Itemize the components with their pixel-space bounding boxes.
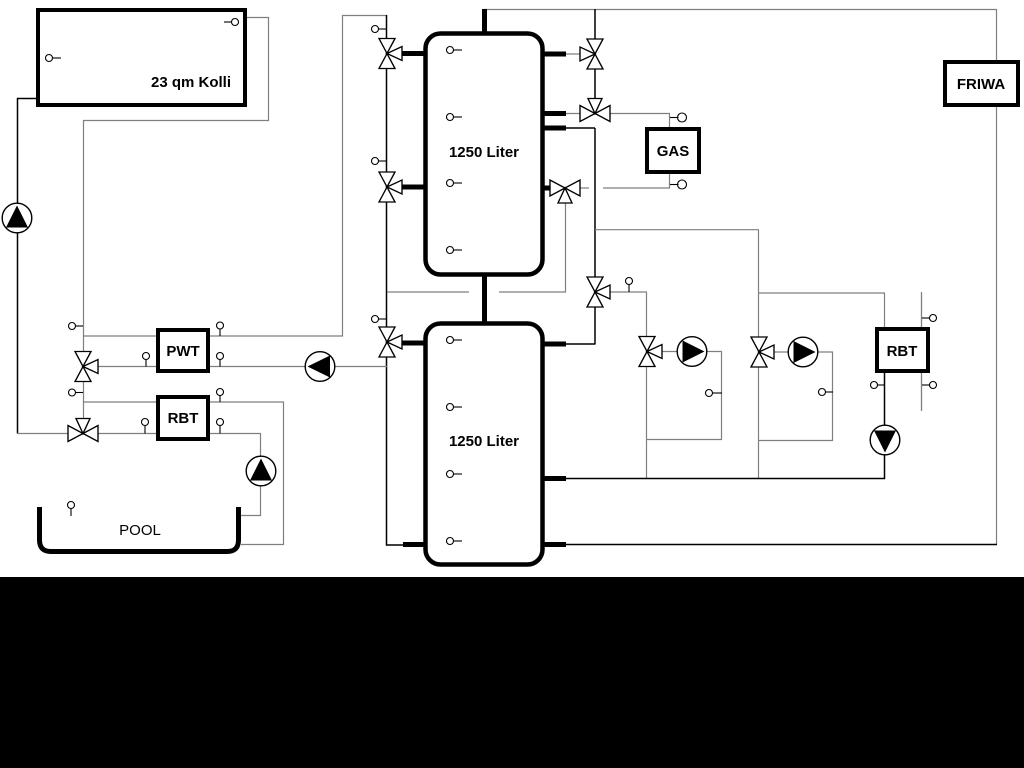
- svg-text:RBT: RBT: [887, 343, 918, 360]
- svg-text:POOL: POOL: [119, 522, 161, 539]
- svg-text:1250 Liter: 1250 Liter: [449, 144, 519, 161]
- svg-text:23 qm Kolli: 23 qm Kolli: [151, 74, 231, 91]
- svg-text:GAS: GAS: [657, 143, 690, 160]
- svg-text:FRIWA: FRIWA: [957, 76, 1005, 93]
- svg-text:RBT: RBT: [168, 410, 199, 427]
- svg-text:1250 Liter: 1250 Liter: [449, 433, 519, 450]
- svg-text:PWT: PWT: [166, 343, 199, 360]
